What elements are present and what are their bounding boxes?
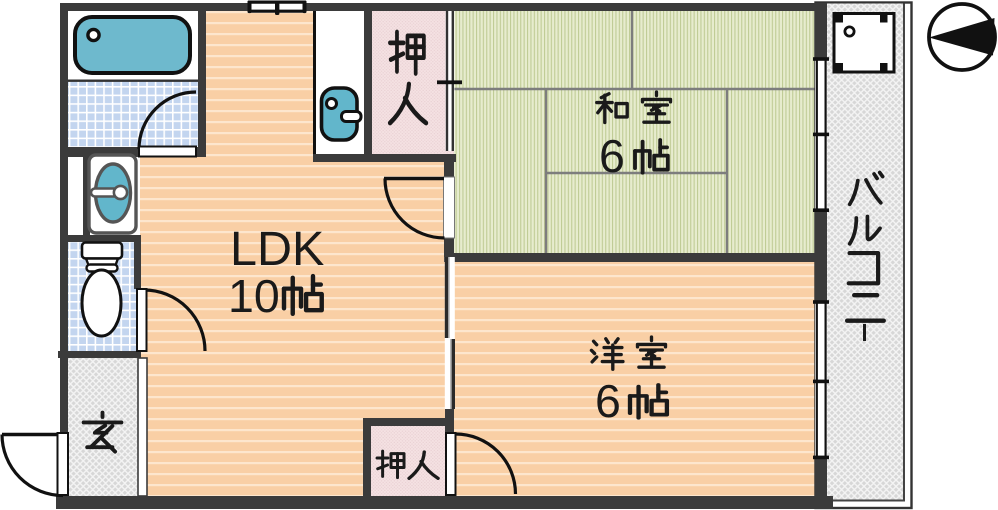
- svg-text:LDK: LDK: [230, 222, 324, 276]
- svg-text:6: 6: [599, 130, 625, 182]
- svg-text:6: 6: [595, 375, 621, 427]
- svg-text:10: 10: [228, 270, 280, 322]
